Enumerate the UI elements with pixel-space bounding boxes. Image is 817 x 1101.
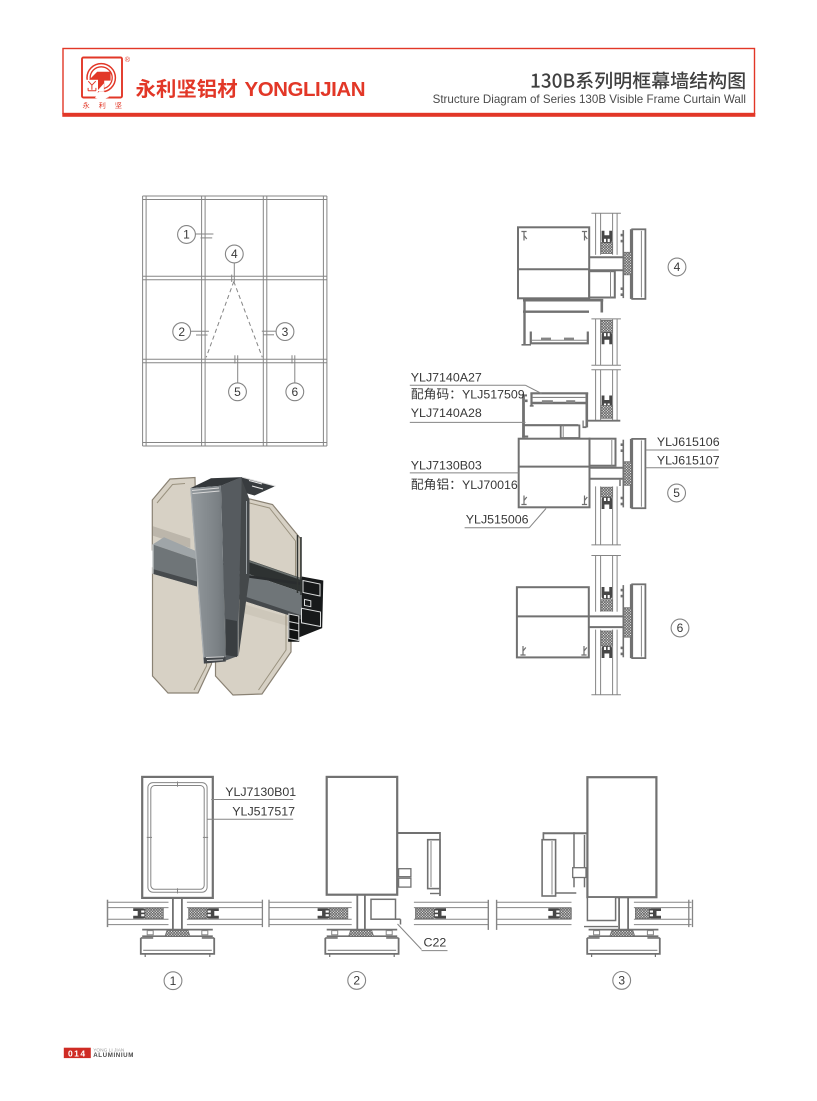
- svg-text:2: 2: [178, 325, 185, 339]
- svg-text:YLJ7130B03: YLJ7130B03: [411, 459, 482, 473]
- svg-text:1: 1: [170, 974, 177, 988]
- svg-text:Structure Diagram of Series 13: Structure Diagram of Series 130B Visible…: [433, 92, 746, 106]
- svg-text:ALUMINIUM: ALUMINIUM: [93, 1052, 134, 1059]
- svg-text:014: 014: [68, 1048, 87, 1058]
- svg-text:YONGLIJIAN: YONGLIJIAN: [245, 78, 366, 101]
- svg-text:YLJ7130B01: YLJ7130B01: [225, 785, 296, 799]
- svg-text:4: 4: [231, 247, 238, 261]
- svg-text:YLJ517517: YLJ517517: [232, 805, 295, 819]
- svg-text:YLJ515006: YLJ515006: [466, 512, 529, 526]
- svg-text:C22: C22: [424, 935, 447, 949]
- svg-text:®: ®: [125, 55, 131, 64]
- svg-text:YLJ615106: YLJ615106: [657, 435, 720, 449]
- svg-text:6: 6: [291, 385, 298, 399]
- svg-text:YLJ615107: YLJ615107: [657, 453, 720, 467]
- svg-text:3: 3: [282, 325, 289, 339]
- svg-text:5: 5: [673, 486, 680, 500]
- svg-text:5: 5: [234, 385, 241, 399]
- svg-text:6: 6: [677, 621, 684, 635]
- svg-text:3: 3: [618, 974, 625, 988]
- svg-text:YLJ517509: YLJ517509: [462, 388, 525, 402]
- svg-text:YLJ70016: YLJ70016: [462, 478, 518, 492]
- svg-text:1: 1: [183, 228, 190, 242]
- svg-text:YLJ7140A28: YLJ7140A28: [411, 406, 482, 420]
- svg-text:4: 4: [674, 260, 681, 274]
- svg-text:2: 2: [353, 974, 360, 988]
- svg-text:YLJ7140A27: YLJ7140A27: [411, 370, 482, 384]
